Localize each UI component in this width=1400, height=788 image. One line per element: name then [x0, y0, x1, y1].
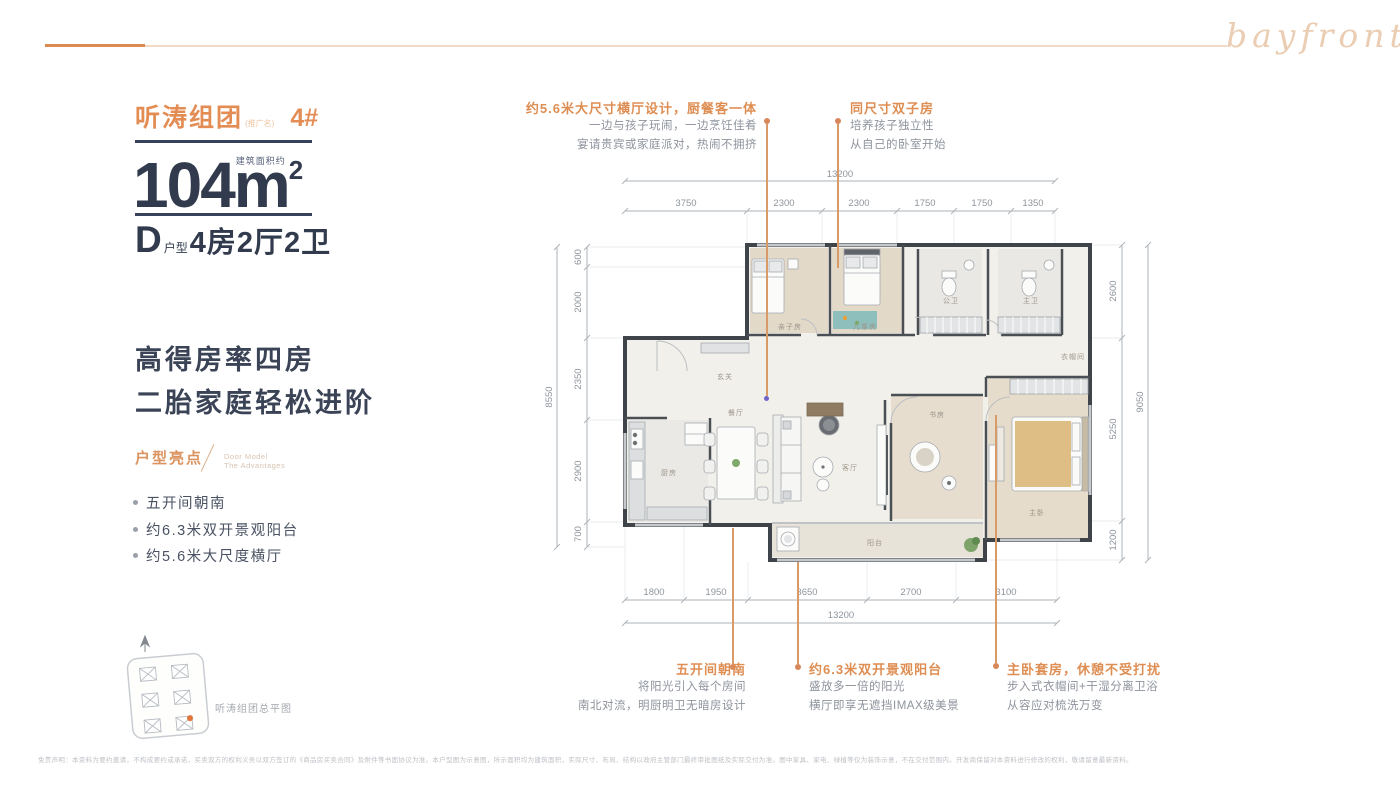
- group-tag: (推广名): [245, 119, 274, 128]
- dim-left-seg: 700: [573, 526, 584, 542]
- annotation-bottom-master-suite: 主卧套房，休憩不受打扰 步入式衣帽间+干湿分离卫浴 从容应对梳洗万变: [1007, 659, 1277, 716]
- disclaimer-text: 免责声明：本资料为要约邀请，不构成要约或承诺，买卖双方的权利义务以双方签订的《商…: [38, 754, 1364, 764]
- dim-left-seg: 2900: [573, 460, 584, 481]
- master-bed: [989, 417, 1088, 491]
- area-superscript: 2: [289, 155, 303, 185]
- leader-line-twin-room: [837, 124, 839, 268]
- dim-top-seg: 1350: [1022, 198, 1043, 209]
- bullet-marker: [133, 527, 138, 532]
- dim-bottom-seg: 1800: [643, 587, 664, 598]
- annotation-line: 培养孩子独立性: [850, 117, 1120, 136]
- unit-label: 户型: [164, 241, 188, 255]
- washing-machine: [777, 527, 799, 551]
- dim-right-seg: 2600: [1108, 280, 1119, 301]
- leader-line-living: [766, 124, 768, 396]
- building-number: 4#: [290, 104, 318, 132]
- annotation-top-twin-rooms: 同尺寸双子房 培养孩子独立性 从自己的卧室开始: [850, 98, 1120, 155]
- headline-line2: 二胎家庭轻松进阶: [135, 381, 375, 420]
- leader-line-south-bays: [732, 528, 734, 664]
- unit-spec: 4房2厅2卫: [190, 227, 331, 259]
- room-label-closet: 衣帽间: [1061, 352, 1085, 361]
- dim-top-seg: 2300: [773, 198, 794, 209]
- divider-rule-top: [135, 140, 312, 143]
- dim-top-seg: 2300: [848, 198, 869, 209]
- floor-plan: 厨房 餐厅 客厅 玄关 阳台 亲子房 儿童房 公卫 主卫 书房 主卧 衣帽间 1…: [545, 165, 1173, 643]
- sideboard: [807, 403, 843, 416]
- highlight-text: 约5.6米大尺度横厅: [146, 549, 283, 565]
- highlights-title: 户型亮点: [135, 447, 203, 468]
- room-label-entry: 玄关: [717, 372, 733, 381]
- annotation-title: 主卧套房，休憩不受打扰: [1007, 659, 1277, 678]
- leader-dot: [764, 118, 770, 124]
- annotation-line: 宴请贵宾或家庭派对，热闹不拥挤: [487, 136, 757, 155]
- highlight-text: 约6.3米双开景观阳台: [146, 523, 299, 539]
- leader-line-balcony: [797, 562, 799, 664]
- dim-bottom-seg: 3650: [796, 587, 817, 598]
- leader-line-master-suite: [995, 415, 997, 663]
- compass-icon: [141, 636, 149, 652]
- dim-left-seg: 2000: [573, 291, 584, 312]
- dim-top-seg: 1750: [914, 198, 935, 209]
- annotation-line: 从自己的卧室开始: [850, 136, 1120, 155]
- annotation-title: 五开间朝南: [476, 659, 746, 678]
- area-row: 104建筑面积约m2: [133, 148, 303, 222]
- highlights-subtitle-en: Door Model The Advantages: [224, 452, 285, 470]
- highlight-item: 五开间朝南: [133, 492, 226, 513]
- siteplan-outline: [127, 653, 210, 739]
- dim-right-seg: 1200: [1108, 529, 1119, 550]
- room-label-study: 书房: [929, 410, 945, 419]
- dim-top-seg: 1750: [971, 198, 992, 209]
- annotation-title: 同尺寸双子房: [850, 98, 1120, 117]
- room-label-twin-b: 儿童房: [853, 322, 877, 331]
- annotation-line: 南北对流，明厨明卫无暗房设计: [476, 697, 746, 716]
- room-label-kitchen: 厨房: [661, 468, 677, 477]
- room-label-bath-master: 主卫: [1023, 296, 1039, 305]
- annotation-line: 从容应对梳洗万变: [1007, 697, 1277, 716]
- highlights-en-line1: Door Model: [224, 452, 285, 461]
- room-label-bath-guest: 公卫: [943, 297, 959, 305]
- annotation-line: 一边与孩子玩闹，一边烹饪佳肴: [487, 117, 757, 136]
- dim-left-seg: 600: [573, 249, 584, 265]
- siteplan-mini-map: [118, 630, 223, 745]
- leader-end-dot: [764, 396, 769, 401]
- room-label-master: 主卧: [1029, 508, 1045, 517]
- highlights-en-line2: The Advantages: [224, 461, 285, 470]
- dim-left-seg: 2350: [573, 368, 584, 389]
- dim-bottom-seg: 1950: [705, 587, 726, 598]
- room-label-living: 客厅: [842, 463, 858, 472]
- room-label-twin-a: 亲子房: [778, 322, 802, 331]
- highlight-item: 约5.6米大尺度横厅: [133, 545, 283, 566]
- annotation-bottom-south-bays: 五开间朝南 将阳光引入每个房间 南北对流，明厨明卫无暗房设计: [476, 659, 746, 716]
- divider-rule-bottom: [135, 213, 312, 216]
- area-prefix: 建筑面积约: [236, 154, 286, 167]
- dim-left-total: 8550: [545, 386, 555, 407]
- annotation-title: 约5.6米大尺寸横厅设计，厨餐客一体: [487, 98, 757, 117]
- unit-letter: D: [135, 219, 162, 260]
- highlight-text: 五开间朝南: [146, 496, 226, 512]
- room-label-balcony: 阳台: [867, 538, 883, 547]
- dim-right-seg: 5250: [1108, 418, 1119, 439]
- dim-right-total: 9050: [1135, 391, 1146, 412]
- bullet-marker: [133, 553, 138, 558]
- dining-table: [704, 427, 768, 500]
- highlight-item: 约6.3米双开景观阳台: [133, 519, 299, 540]
- tv-console: [877, 425, 888, 505]
- unit-type-row: D户型4房2厅2卫: [135, 219, 331, 261]
- siteplan-caption: 听涛组团总平图: [215, 700, 292, 715]
- dim-bottom-total: 13200: [828, 610, 854, 621]
- poster-canvas: { "header": { "script_logo": "bayfront" …: [0, 0, 1400, 788]
- annotation-line: 将阳光引入每个房间: [476, 678, 746, 697]
- annotation-top-living: 约5.6米大尺寸横厅设计，厨餐客一体 一边与孩子玩闹，一边烹饪佳肴 宴请贵宾或家…: [487, 98, 757, 155]
- dim-top-total: 13200: [827, 169, 853, 180]
- dim-top-seg: 3750: [675, 198, 696, 209]
- dim-bottom-seg: 3100: [995, 587, 1016, 598]
- bullet-marker: [133, 500, 138, 505]
- group-title-row: 听涛组团(推广名)4#: [135, 98, 318, 134]
- header-accent-line: [45, 44, 145, 47]
- sofa: [773, 415, 801, 503]
- leader-dot: [835, 118, 841, 124]
- entry-cabinet: [701, 343, 749, 353]
- headline-line1: 高得房率四房: [135, 338, 315, 377]
- area-value: 104: [133, 149, 234, 221]
- dim-bottom-seg: 2700: [900, 587, 921, 598]
- annotation-line: 步入式衣帽间+干湿分离卫浴: [1007, 678, 1277, 697]
- room-label-dining: 餐厅: [728, 408, 744, 417]
- group-name: 听涛组团: [135, 104, 243, 132]
- leader-dot: [795, 664, 801, 670]
- brand-script-logo: bayfront: [1226, 16, 1400, 55]
- header-thin-line: [145, 45, 1227, 47]
